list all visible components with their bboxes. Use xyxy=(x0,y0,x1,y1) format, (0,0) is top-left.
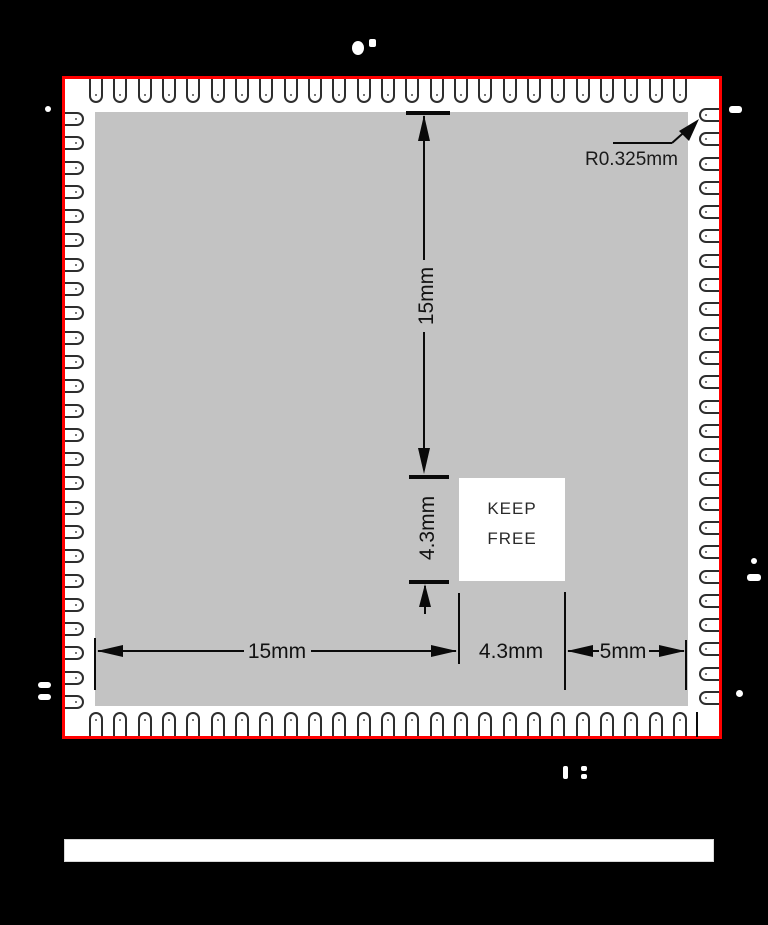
castellated-pad xyxy=(65,209,84,223)
castellated-pad xyxy=(576,712,590,736)
castellated-pad xyxy=(186,712,200,736)
pad-center-dot xyxy=(705,648,707,650)
castellated-pad xyxy=(551,79,565,103)
castellated-pad xyxy=(699,424,719,438)
castellated-pad xyxy=(65,379,84,393)
castellated-pad xyxy=(65,428,84,442)
pad-center-dot xyxy=(705,357,707,359)
pad-center-dot xyxy=(290,94,292,96)
pad-center-dot xyxy=(705,697,707,699)
pad-center-dot xyxy=(75,142,77,144)
castellated-pad xyxy=(162,712,176,736)
pad-center-dot xyxy=(241,94,243,96)
pad-center-dot xyxy=(705,624,707,626)
pad-center-dot xyxy=(705,235,707,237)
castellated-pad xyxy=(65,331,84,345)
castellated-pad xyxy=(699,108,719,122)
pad-center-dot xyxy=(119,719,121,721)
pad-center-dot xyxy=(75,482,77,484)
castellated-pad xyxy=(699,181,719,195)
castellated-pad xyxy=(478,712,492,736)
pad-center-dot xyxy=(290,719,292,721)
keep-free-zone: KEEP FREE xyxy=(459,478,565,581)
pad-center-dot xyxy=(241,719,243,721)
pad-center-dot xyxy=(75,507,77,509)
pad-center-dot xyxy=(75,191,77,193)
castellated-pad xyxy=(527,79,541,103)
castellated-pad xyxy=(699,351,719,365)
pad-center-dot xyxy=(705,284,707,286)
castellated-pad xyxy=(259,79,273,103)
pad-center-dot xyxy=(314,719,316,721)
castellated-pad xyxy=(699,375,719,389)
pad-center-dot xyxy=(95,94,97,96)
castellated-pad xyxy=(600,79,614,103)
castellated-pad xyxy=(65,574,84,588)
castellated-pad xyxy=(89,79,103,103)
castellated-pad xyxy=(259,712,273,736)
pad-center-dot xyxy=(217,94,219,96)
pad-center-dot xyxy=(533,719,535,721)
pad-center-dot xyxy=(484,94,486,96)
castellated-pad xyxy=(65,452,84,466)
castellated-pad xyxy=(186,79,200,103)
castellated-pad xyxy=(138,79,152,103)
print-artifact xyxy=(581,774,587,779)
print-artifact xyxy=(45,106,51,112)
pad-center-dot xyxy=(557,94,559,96)
pad-center-dot xyxy=(705,333,707,335)
castellated-pad xyxy=(405,79,419,103)
print-artifact xyxy=(751,558,757,564)
castellated-pad xyxy=(576,79,590,103)
print-artifact xyxy=(38,682,51,688)
pad-center-dot xyxy=(338,719,340,721)
castellated-pad xyxy=(699,448,719,462)
castellated-pad xyxy=(405,712,419,736)
castellated-pad xyxy=(699,521,719,535)
castellated-pad xyxy=(503,79,517,103)
pad-center-dot xyxy=(217,719,219,721)
castellated-pad xyxy=(65,549,84,563)
dim-label-vertical-4-3mm: 4.3mm xyxy=(416,496,440,560)
pad-center-dot xyxy=(75,337,77,339)
pad-center-dot xyxy=(705,430,707,432)
castellated-pad xyxy=(89,712,103,736)
castellated-pad xyxy=(65,136,84,150)
pad-center-dot xyxy=(705,308,707,310)
castellated-pad xyxy=(65,112,84,126)
castellated-pad xyxy=(284,712,298,736)
pad-center-dot xyxy=(119,94,121,96)
corner-radius-label: R0.325mm xyxy=(585,149,678,171)
print-artifact xyxy=(38,694,51,700)
pad-center-dot xyxy=(314,94,316,96)
print-artifact xyxy=(581,766,587,771)
castellated-pad xyxy=(308,712,322,736)
print-artifact xyxy=(369,39,376,47)
pad-center-dot xyxy=(75,580,77,582)
pad-center-dot xyxy=(75,531,77,533)
pad-center-dot xyxy=(655,719,657,721)
title-block-bar xyxy=(64,839,714,862)
pad-center-dot xyxy=(75,701,77,703)
castellated-pad xyxy=(65,598,84,612)
pad-center-dot xyxy=(95,719,97,721)
castellated-pad xyxy=(699,667,719,681)
castellated-pad xyxy=(65,282,84,296)
castellated-pad xyxy=(600,712,614,736)
castellated-pad xyxy=(65,695,84,709)
castellated-pad xyxy=(65,671,84,685)
castellated-pad xyxy=(65,404,84,418)
pad-center-dot xyxy=(705,260,707,262)
castellated-pad xyxy=(113,712,127,736)
castellated-pad xyxy=(284,79,298,103)
castellated-pad xyxy=(65,476,84,490)
pad-center-dot xyxy=(75,555,77,557)
pad-center-dot xyxy=(509,94,511,96)
pad-center-dot xyxy=(606,94,608,96)
castellated-pad xyxy=(699,545,719,559)
castellated-pad xyxy=(699,229,719,243)
castellated-pad xyxy=(624,79,638,103)
pad-center-dot xyxy=(460,94,462,96)
pad-center-dot xyxy=(705,576,707,578)
castellated-pad xyxy=(430,79,444,103)
pad-center-dot xyxy=(705,478,707,480)
pad-center-dot xyxy=(705,114,707,116)
pad-center-dot xyxy=(705,600,707,602)
castellated-pad xyxy=(235,79,249,103)
module-body xyxy=(95,112,688,706)
pad-center-dot xyxy=(582,719,584,721)
castellated-pad xyxy=(699,642,719,656)
pad-center-dot xyxy=(705,527,707,529)
pad-center-dot xyxy=(192,94,194,96)
pad-center-dot xyxy=(168,719,170,721)
pad-center-dot xyxy=(705,138,707,140)
castellated-pad xyxy=(138,712,152,736)
castellated-pad xyxy=(332,712,346,736)
print-artifact xyxy=(736,690,743,697)
pad-center-dot xyxy=(679,719,681,721)
pad-center-dot xyxy=(705,551,707,553)
castellated-pad xyxy=(308,79,322,103)
castellated-pad xyxy=(430,712,444,736)
pad-center-dot xyxy=(75,604,77,606)
dim-label-horizontal-5mm: 5mm xyxy=(600,640,647,664)
pad-center-dot xyxy=(75,239,77,241)
pad-center-dot xyxy=(705,406,707,408)
pad-center-dot xyxy=(363,94,365,96)
pad-center-dot xyxy=(630,94,632,96)
pad-center-dot xyxy=(606,719,608,721)
pad-center-dot xyxy=(630,719,632,721)
pad-center-dot xyxy=(168,94,170,96)
pad-center-dot xyxy=(705,211,707,213)
castellated-pad xyxy=(699,205,719,219)
pad-center-dot xyxy=(655,94,657,96)
castellated-pad xyxy=(65,622,84,636)
pad-center-dot xyxy=(75,628,77,630)
castellated-pad xyxy=(478,79,492,103)
print-artifact xyxy=(563,766,568,779)
castellated-pad xyxy=(673,712,687,736)
castellated-pad xyxy=(381,712,395,736)
print-artifact xyxy=(352,41,364,55)
pad-center-dot xyxy=(338,94,340,96)
pad-center-dot xyxy=(705,187,707,189)
castellated-pad xyxy=(624,712,638,736)
pad-center-dot xyxy=(75,410,77,412)
pad-center-dot xyxy=(411,719,413,721)
castellated-pad xyxy=(699,278,719,292)
pad-center-dot xyxy=(75,652,77,654)
castellated-pad xyxy=(551,712,565,736)
castellated-pad xyxy=(65,355,84,369)
castellated-pad xyxy=(649,712,663,736)
pad-center-dot xyxy=(144,94,146,96)
pad-center-dot xyxy=(557,719,559,721)
pad-center-dot xyxy=(75,167,77,169)
drawing-canvas: 15mm 4.3mm 15mm 4.3mm 5mm R0.325mm KEEP … xyxy=(0,0,768,925)
pad-center-dot xyxy=(436,719,438,721)
pad-center-dot xyxy=(75,264,77,266)
pad-center-dot xyxy=(363,719,365,721)
pad-center-dot xyxy=(75,434,77,436)
castellated-pad xyxy=(503,712,517,736)
pad-center-dot xyxy=(679,94,681,96)
pad-center-dot xyxy=(387,719,389,721)
castellated-pad xyxy=(699,570,719,584)
castellated-pad xyxy=(65,501,84,515)
pad-center-dot xyxy=(75,677,77,679)
castellated-pad xyxy=(357,712,371,736)
castellated-pad xyxy=(65,306,84,320)
castellated-pad xyxy=(699,497,719,511)
pad-center-dot xyxy=(75,118,77,120)
castellated-pad xyxy=(699,302,719,316)
pad-center-dot xyxy=(265,94,267,96)
castellated-pad xyxy=(527,712,541,736)
pad-center-dot xyxy=(705,381,707,383)
castellated-pad xyxy=(649,79,663,103)
pad-center-dot xyxy=(387,94,389,96)
pad-center-dot xyxy=(484,719,486,721)
castellated-pad xyxy=(65,646,84,660)
pad-center-dot xyxy=(705,454,707,456)
keep-free-line1: KEEP xyxy=(487,500,536,517)
castellated-pad xyxy=(699,400,719,414)
castellated-pad xyxy=(699,254,719,268)
pad-center-dot xyxy=(411,94,413,96)
pad-center-dot xyxy=(533,94,535,96)
castellated-pad xyxy=(357,79,371,103)
castellated-pad xyxy=(699,618,719,632)
pad-center-dot xyxy=(144,719,146,721)
castellated-pad xyxy=(699,157,719,171)
pad-center-dot xyxy=(705,673,707,675)
pad-center-dot xyxy=(705,163,707,165)
castellated-pad xyxy=(65,525,84,539)
pad-center-dot xyxy=(705,503,707,505)
castellated-pad xyxy=(699,691,719,705)
keep-free-line2: FREE xyxy=(487,530,536,547)
castellated-pad xyxy=(65,161,84,175)
castellated-pad xyxy=(699,472,719,486)
pad-center-dot xyxy=(509,719,511,721)
castellated-pad xyxy=(162,79,176,103)
pad-center-dot xyxy=(460,719,462,721)
pad-center-dot xyxy=(75,288,77,290)
castellated-pad xyxy=(211,79,225,103)
pad-center-dot xyxy=(75,215,77,217)
pad-center-dot xyxy=(75,312,77,314)
pad-center-dot xyxy=(75,361,77,363)
pad-center-dot xyxy=(436,94,438,96)
castellated-pad xyxy=(65,185,84,199)
castellated-pad xyxy=(211,712,225,736)
castellated-pad xyxy=(113,79,127,103)
castellated-pad xyxy=(332,79,346,103)
pad-center-dot xyxy=(192,719,194,721)
dim-label-horizontal-4-3mm: 4.3mm xyxy=(479,640,543,664)
castellated-pad xyxy=(65,233,84,247)
castellated-pad xyxy=(65,258,84,272)
castellated-pad xyxy=(454,79,468,103)
castellated-pad xyxy=(381,79,395,103)
dim-label-vertical-15mm: 15mm xyxy=(415,267,439,325)
pad-center-dot xyxy=(582,94,584,96)
castellated-pad xyxy=(454,712,468,736)
pad-center-dot xyxy=(75,458,77,460)
print-artifact xyxy=(747,574,761,581)
castellated-pad xyxy=(673,79,687,103)
castellated-pad xyxy=(699,594,719,608)
castellated-pad xyxy=(699,132,719,146)
pad-center-dot xyxy=(75,385,77,387)
pad-center-dot xyxy=(265,719,267,721)
print-artifact xyxy=(729,106,742,113)
castellated-pad xyxy=(699,327,719,341)
dim-label-horizontal-15mm: 15mm xyxy=(248,640,306,664)
castellated-pad xyxy=(235,712,249,736)
